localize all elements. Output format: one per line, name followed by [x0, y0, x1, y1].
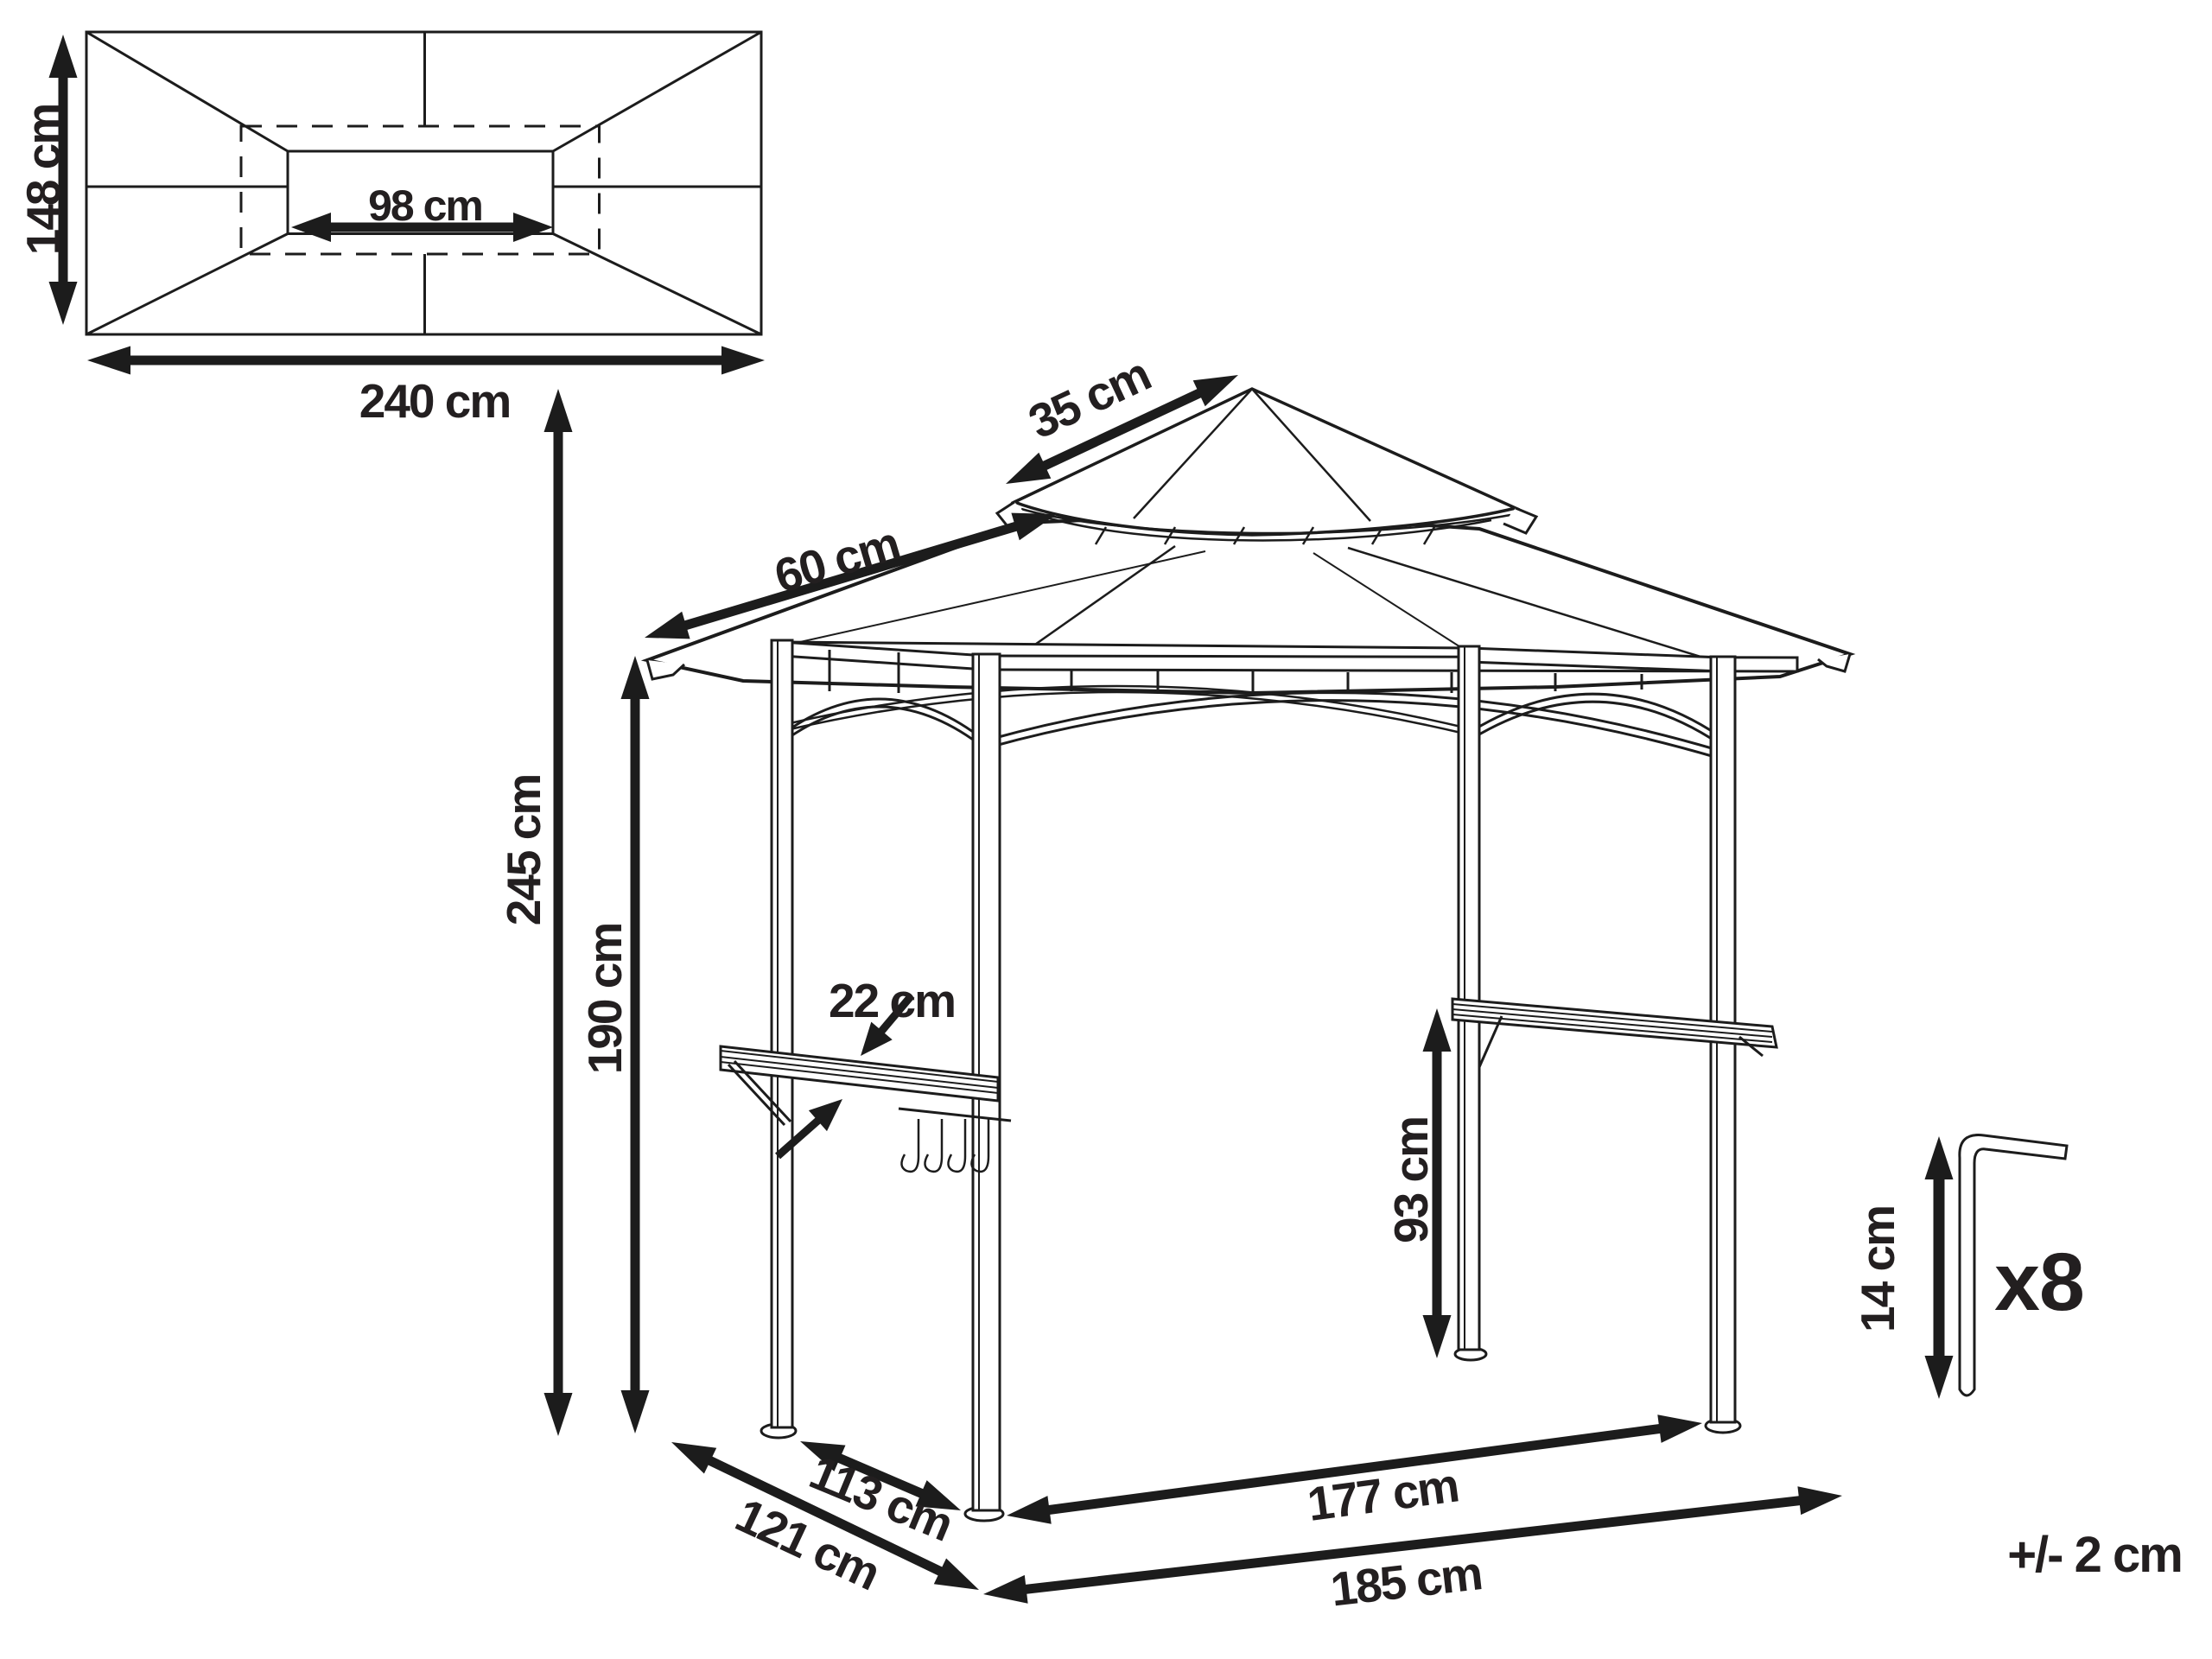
svg-text:148 cm: 148 cm — [16, 105, 70, 256]
svg-text:190 cm: 190 cm — [578, 924, 632, 1075]
svg-text:240 cm: 240 cm — [359, 374, 511, 428]
svg-text:22 cm: 22 cm — [829, 974, 955, 1027]
svg-text:245 cm: 245 cm — [497, 775, 550, 926]
svg-text:98 cm: 98 cm — [368, 181, 482, 230]
svg-text:x8: x8 — [1994, 1236, 2084, 1328]
svg-text:+/- 2 cm: +/- 2 cm — [2007, 1527, 2182, 1583]
svg-text:93 cm: 93 cm — [1384, 1117, 1438, 1243]
svg-text:14 cm: 14 cm — [1851, 1206, 1904, 1332]
